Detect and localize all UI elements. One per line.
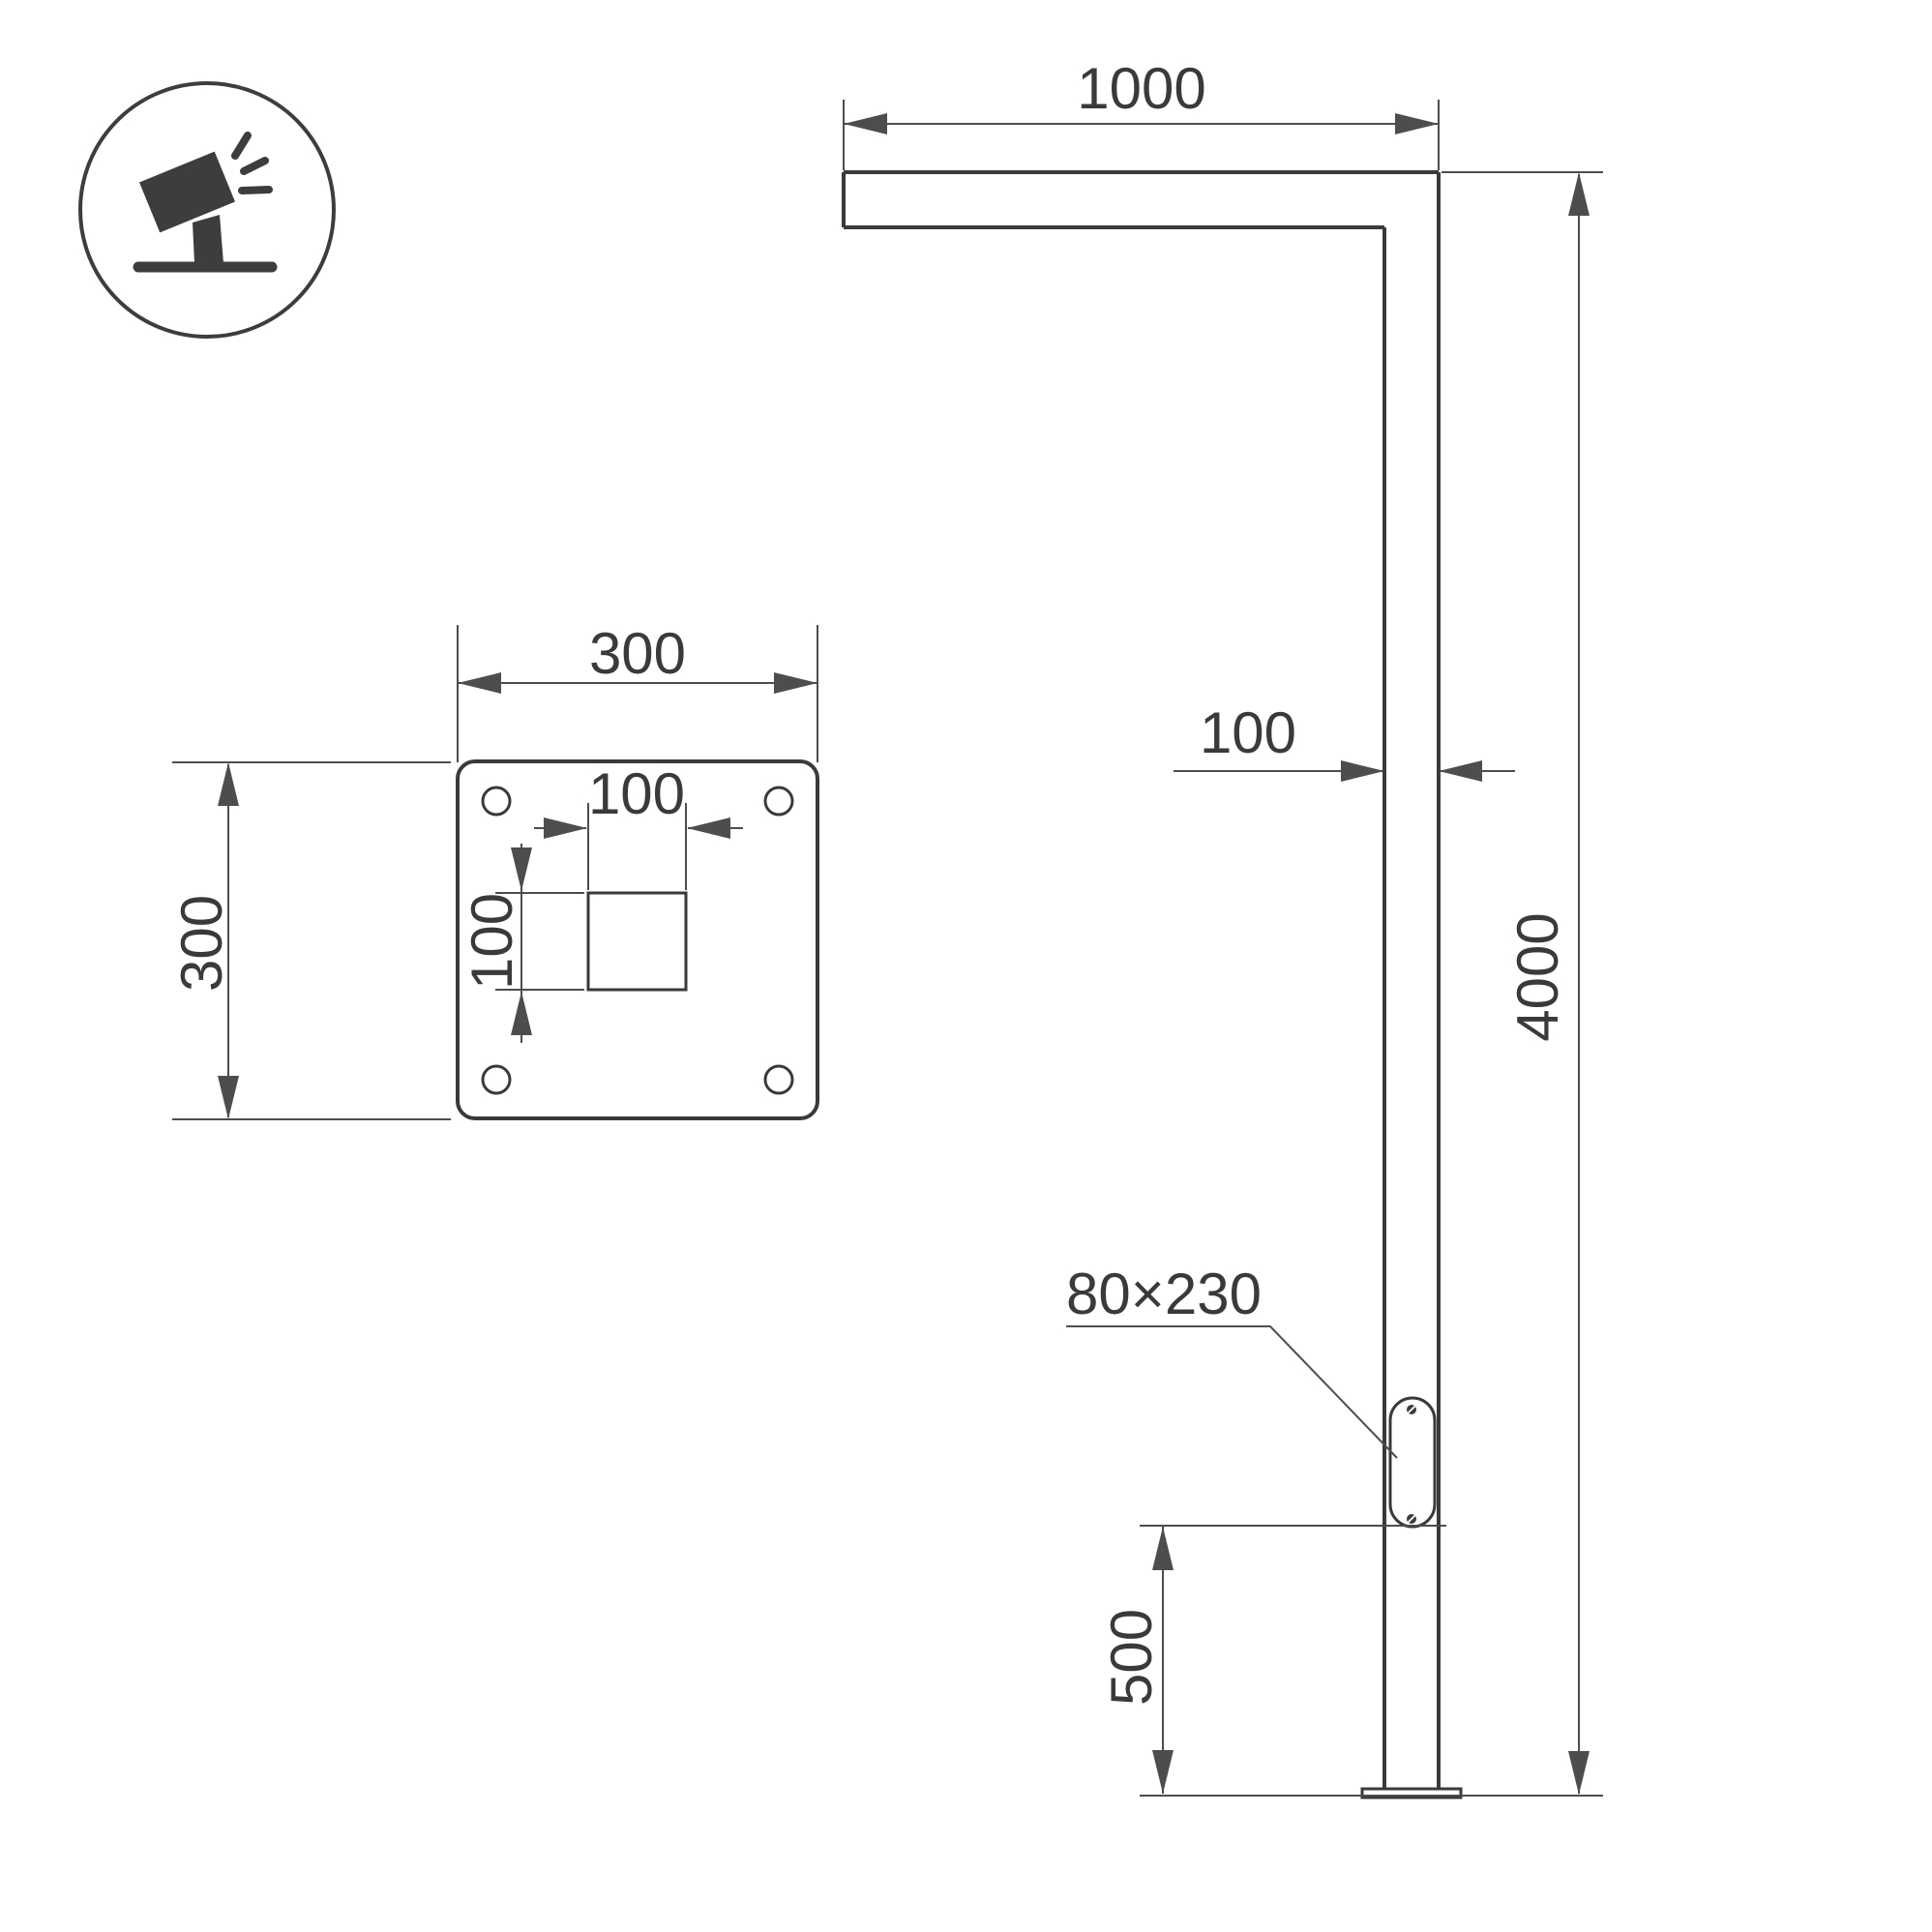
light-ray-middle [244,161,265,171]
dim-plate-width: 300 [458,621,817,762]
arrowhead-bottom [1152,1750,1174,1794]
dim-text-pole-height: 4000 [1505,912,1570,1041]
light-ray-top [235,135,248,156]
arrowhead-left [1341,760,1384,782]
arrowhead-top [1568,172,1590,216]
access-panel-screw-top [1407,1405,1416,1414]
arrowhead-bottom [218,1076,239,1119]
label-text-panel-size: 80×230 [1066,1262,1262,1326]
arrowhead-top [1152,1527,1174,1570]
floodlight-stand [193,215,223,263]
arrowhead-top [218,762,239,806]
leader-line [1066,1326,1397,1458]
pole-side-view [844,172,1461,1798]
arrowhead-right [774,672,817,694]
floodlight-body [139,152,235,233]
light-ray-bottom [242,190,269,191]
access-panel [1390,1398,1435,1527]
dim-text-plate-width: 300 [589,621,686,686]
arrowhead-left [458,672,501,694]
arrowhead-right [1395,113,1439,134]
arrowhead-left [844,113,887,134]
access-panel-label: 80×230 [1066,1262,1397,1458]
dim-text-arm-length: 1000 [1077,56,1205,121]
dim-text-hole-height: 100 [460,893,524,990]
dim-panel-offset: 500 [1099,1526,1446,1794]
dim-pole-width: 100 [1174,700,1515,782]
dim-text-plate-height: 300 [169,895,234,992]
drawing-svg: 1000 100 4000 500 80×230 [0,0,1932,1932]
arrowhead-right [1439,760,1482,782]
dim-text-pole-width: 100 [1200,700,1296,765]
floodlight-icon [80,83,334,337]
dim-pole-height: 4000 [1140,172,1603,1796]
dim-text-panel-offset: 500 [1099,1609,1164,1706]
dim-arm-length: 1000 [844,56,1439,170]
dim-text-hole-width: 100 [588,761,685,826]
technical-drawing-page: 1000 100 4000 500 80×230 [0,0,1932,1932]
dim-plate-height: 300 [169,762,451,1119]
arrowhead-bottom [1568,1751,1590,1795]
access-panel-screw-bottom [1407,1514,1416,1524]
